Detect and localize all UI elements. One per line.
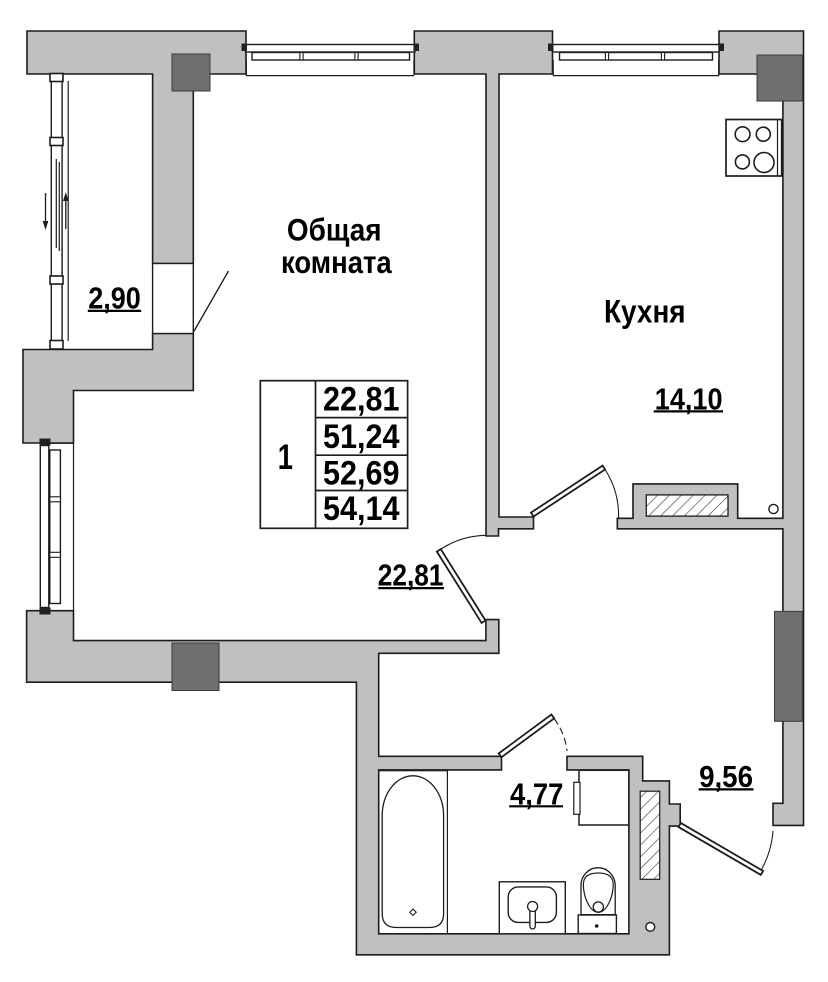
- svg-text:54,14: 54,14: [323, 490, 400, 528]
- svg-text:комната: комната: [281, 244, 392, 280]
- svg-text:52,69: 52,69: [323, 454, 400, 492]
- svg-text:22,81: 22,81: [323, 380, 400, 418]
- svg-text:51,24: 51,24: [323, 418, 400, 456]
- svg-text:Кухня: Кухня: [604, 293, 686, 329]
- svg-text:1: 1: [278, 438, 293, 477]
- svg-text:Общая: Общая: [287, 212, 382, 248]
